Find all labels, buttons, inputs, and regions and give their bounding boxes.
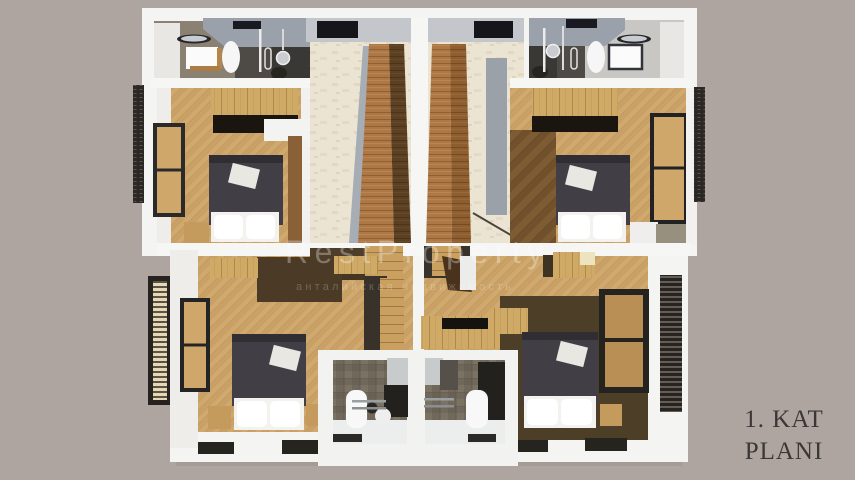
svg-text:PLANI: PLANI — [745, 438, 824, 465]
svg-text:анталийская недвижимость: анталийская недвижимость — [296, 281, 514, 293]
svg-text:RestProperty: RestProperty — [285, 234, 550, 270]
svg-text:1. KAT: 1. KAT — [744, 406, 824, 433]
